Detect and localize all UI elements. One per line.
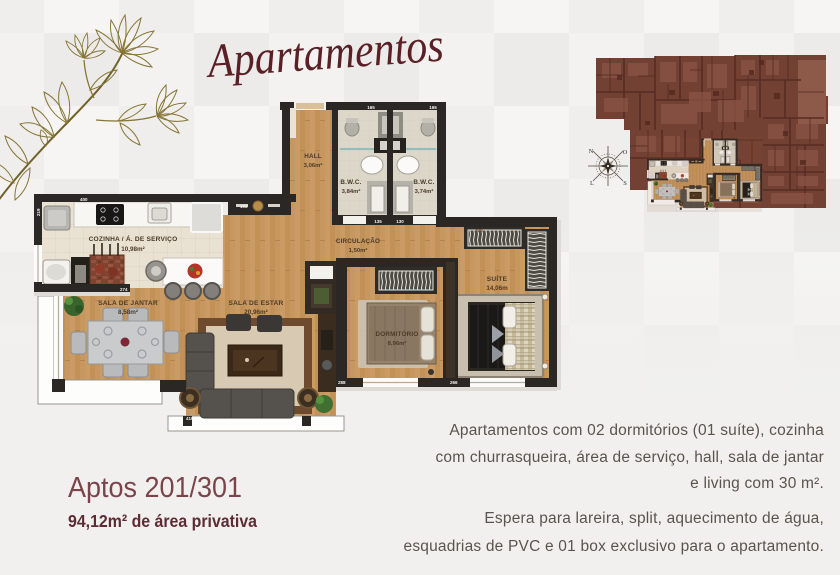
svg-text:SUÍTE: SUÍTE — [487, 274, 508, 283]
svg-text:SALA DE ESTAR: SALA DE ESTAR — [229, 300, 284, 307]
svg-text:135: 135 — [374, 219, 382, 224]
svg-text:274: 274 — [120, 287, 128, 292]
svg-text:193: 193 — [240, 204, 248, 209]
svg-text:COZINHA / Á. DE SERVIÇO: COZINHA / Á. DE SERVIÇO — [89, 234, 178, 243]
svg-text:CIRCULAÇÃO: CIRCULAÇÃO — [336, 236, 380, 245]
svg-text:3,84m²: 3,84m² — [342, 188, 361, 195]
svg-text:Espera para lareira, split, aq: Espera para lareira, split, aquecimento … — [484, 510, 824, 527]
svg-text:1,50m²: 1,50m² — [349, 247, 368, 254]
svg-text:Apartamentos: Apartamentos — [203, 19, 445, 89]
svg-text:219: 219 — [36, 208, 41, 216]
svg-text:165: 165 — [367, 105, 375, 110]
svg-text:410: 410 — [186, 416, 194, 421]
svg-text:SALA DE JANTAR: SALA DE JANTAR — [98, 300, 158, 307]
svg-text:10,98m²: 10,98m² — [121, 246, 144, 253]
svg-text:e living com 30 m².: e living com 30 m². — [690, 475, 824, 492]
svg-text:14,06m: 14,06m — [486, 285, 508, 292]
svg-text:S: S — [623, 180, 627, 187]
svg-text:Apartamentos com 02 dormitório: Apartamentos com 02 dormitórios (01 suít… — [449, 422, 824, 439]
svg-text:8,58m²: 8,58m² — [118, 309, 138, 316]
svg-text:20,96m²: 20,96m² — [244, 309, 267, 316]
svg-text:O: O — [623, 149, 628, 156]
svg-text:3,06m²: 3,06m² — [304, 162, 323, 169]
svg-text:N: N — [589, 148, 594, 155]
svg-text:com churrasqueira, área de ser: com churrasqueira, área de serviço, hall… — [435, 449, 824, 466]
svg-text:HALL: HALL — [304, 153, 322, 160]
svg-text:DORMITÓRIO: DORMITÓRIO — [376, 329, 419, 338]
svg-text:400: 400 — [80, 197, 88, 202]
svg-text:288: 288 — [338, 380, 346, 385]
svg-text:165: 165 — [429, 105, 437, 110]
svg-text:130: 130 — [396, 219, 404, 224]
svg-text:L: L — [590, 180, 594, 187]
svg-text:8,96m²: 8,96m² — [388, 340, 407, 347]
svg-text:3,74m²: 3,74m² — [415, 188, 434, 195]
svg-text:Aptos 201/301: Aptos 201/301 — [68, 472, 242, 504]
svg-text:esquadrias de PVC e 01 box ex: esquadrias de PVC e 01 box exclusivo par… — [404, 538, 824, 555]
svg-text:94,12m² de área privativa: 94,12m² de área privativa — [68, 511, 257, 531]
svg-text:B.W.C.: B.W.C. — [340, 179, 361, 186]
svg-text:400: 400 — [475, 228, 483, 233]
svg-text:266: 266 — [450, 380, 458, 385]
svg-text:B.W.C.: B.W.C. — [413, 179, 434, 186]
